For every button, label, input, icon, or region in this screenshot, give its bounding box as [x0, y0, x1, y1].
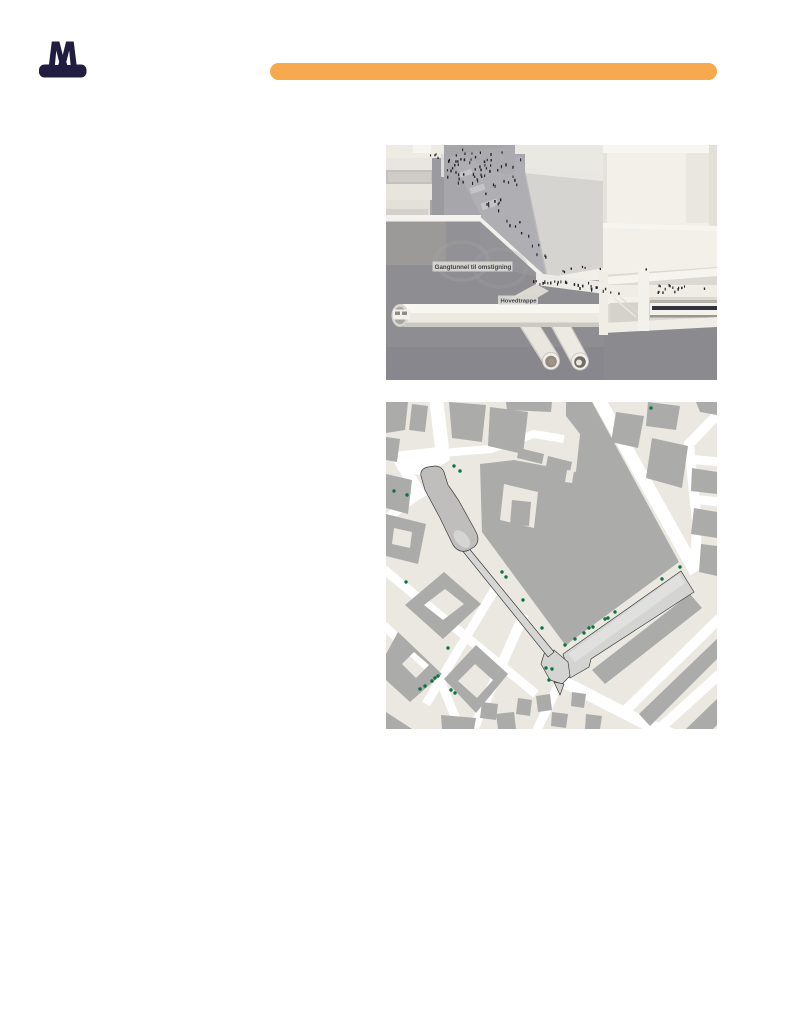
svg-text:Gangtunnel til omstigning: Gangtunnel til omstigning: [435, 264, 512, 271]
svg-text:Hovedtrappe: Hovedtrappe: [500, 298, 537, 304]
